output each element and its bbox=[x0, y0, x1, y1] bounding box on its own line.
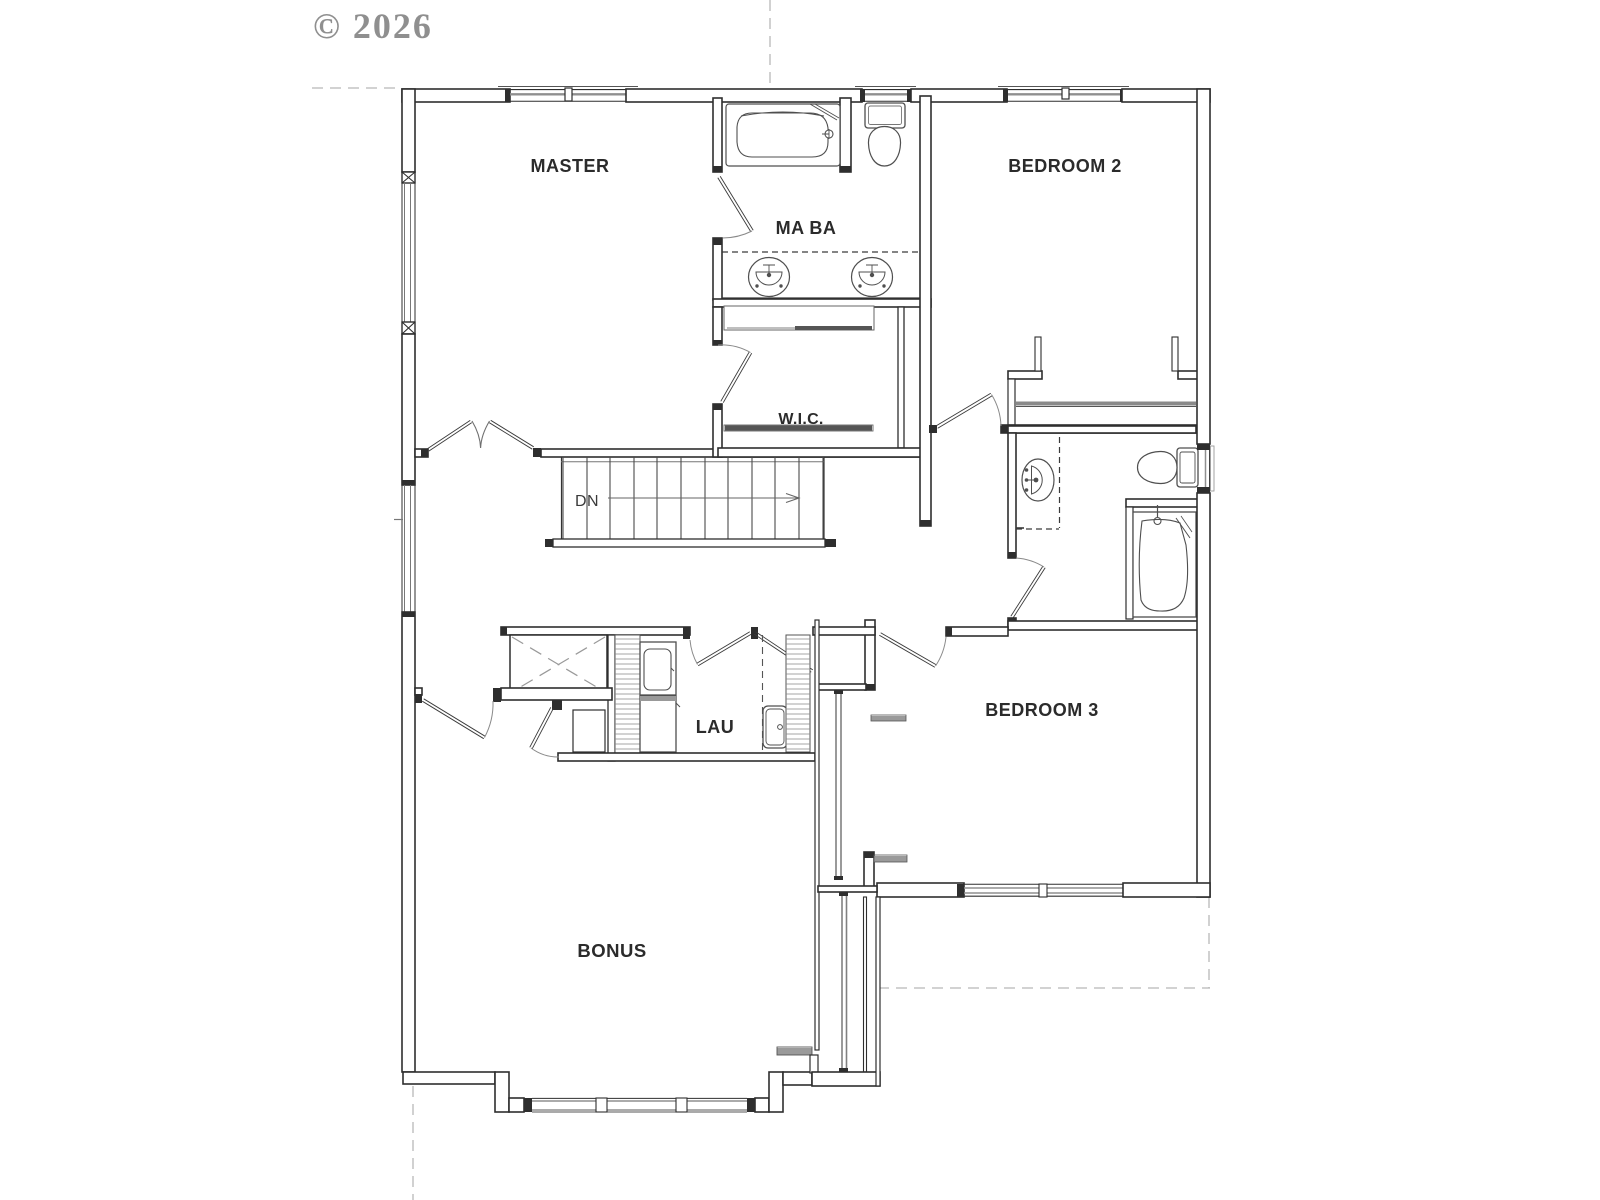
svg-text:W.I.C.: W.I.C. bbox=[778, 411, 823, 428]
svg-text:BEDROOM 2: BEDROOM 2 bbox=[1008, 156, 1122, 176]
svg-text:BONUS: BONUS bbox=[577, 940, 646, 961]
svg-text:BEDROOM 3: BEDROOM 3 bbox=[985, 700, 1099, 720]
svg-text:MA BA: MA BA bbox=[776, 218, 837, 238]
svg-text:MASTER: MASTER bbox=[531, 156, 610, 176]
svg-text:LAU: LAU bbox=[696, 717, 735, 737]
svg-text:DN: DN bbox=[575, 493, 599, 510]
svg-text:© 2026: © 2026 bbox=[313, 6, 433, 46]
